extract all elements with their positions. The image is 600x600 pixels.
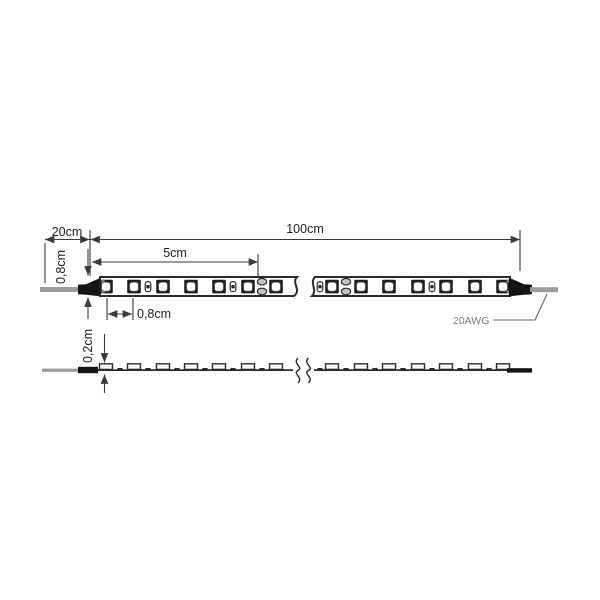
led-lens [328,282,337,291]
dim-strip-width: 0,8cm [54,249,88,319]
top-view: 20cm 100cm 5cm 0,8cm [40,222,558,327]
led-lens [471,282,480,291]
pad-dash [145,368,150,371]
break-squiggle-left [296,358,299,383]
side-connector-left [78,367,98,373]
solder-pad [341,288,350,295]
dim-label-20cm: 20cm [52,225,83,239]
led-bump [270,364,283,370]
resistor-mark [318,285,321,288]
pad-dash [202,368,207,371]
dim-strip-thickness: 0,2cm [81,329,105,393]
led-strip-diagram: 20cm 100cm 5cm 0,8cm [0,0,600,600]
led-bump [326,364,339,370]
led-bump [157,364,170,370]
strip-body [99,277,510,296]
resistor-mark [430,285,433,288]
lead-wire-left [40,287,80,292]
dim-label-width-0-8cm: 0,8cm [54,250,68,284]
led-lens [272,282,281,291]
led-bump [100,364,113,370]
pad-dash [400,368,405,371]
led-lens [102,282,111,291]
side-connector-right [507,368,532,372]
led-bump [128,364,141,370]
led-bump [469,364,482,370]
led-bump [383,364,396,370]
lead-wire-right [530,287,558,292]
wire-gauge-label: 20AWG [453,315,489,327]
led-lens [385,282,394,291]
pad-dash [343,368,348,371]
solder-pad [341,278,350,285]
end-pad-dot [101,290,104,293]
pad-dash [457,368,462,371]
led-lens [414,282,423,291]
led-lens [130,282,139,291]
led-bump [412,364,425,370]
end-pad-dot [101,280,104,283]
led-lens [187,282,196,291]
resistor-mark [146,285,149,288]
led-chips [99,280,510,294]
solder-pad [257,278,266,285]
side-view: 0,2cm [42,329,532,393]
pad-dash [429,368,434,371]
led-lens [499,282,508,291]
led-bump [242,364,255,370]
dim-label-100cm: 100cm [286,222,324,236]
pad-dash [317,368,322,371]
led-lens [442,282,451,291]
dim-label-pitch-0-8cm: 0,8cm [137,307,171,321]
diagram-canvas: 20cm 100cm 5cm 0,8cm [0,0,600,600]
dim-label-thickness-0-2cm: 0,2cm [81,329,95,363]
led-bump [185,364,198,370]
led-lens [357,282,366,291]
pad-dash [230,368,235,371]
resistor-mark [231,285,234,288]
dim-cut-segment: 5cm [92,246,258,276]
pad-dash [372,368,377,371]
led-lens [244,282,253,291]
connector-left [78,278,101,297]
side-lead-wire-left [42,369,78,372]
dim-strip-length: 100cm [91,222,521,271]
pad-dash [174,368,179,371]
pad-dash [117,368,122,371]
led-lens [215,282,224,291]
dim-label-5cm: 5cm [163,246,187,260]
connector-right [509,278,532,297]
led-bump [355,364,368,370]
break-squiggle-right [307,358,310,383]
wire-gauge-callout: 20AWG [453,294,547,327]
wire-gauge-leader-line [493,294,547,320]
led-lens [159,282,168,291]
pad-dash [259,368,264,371]
side-led-bumps [100,364,510,370]
led-bump [440,364,453,370]
pad-dash [486,368,491,371]
dim-led-pitch: 0,8cm [107,298,171,321]
solder-pad [257,288,266,295]
led-bump [213,364,226,370]
